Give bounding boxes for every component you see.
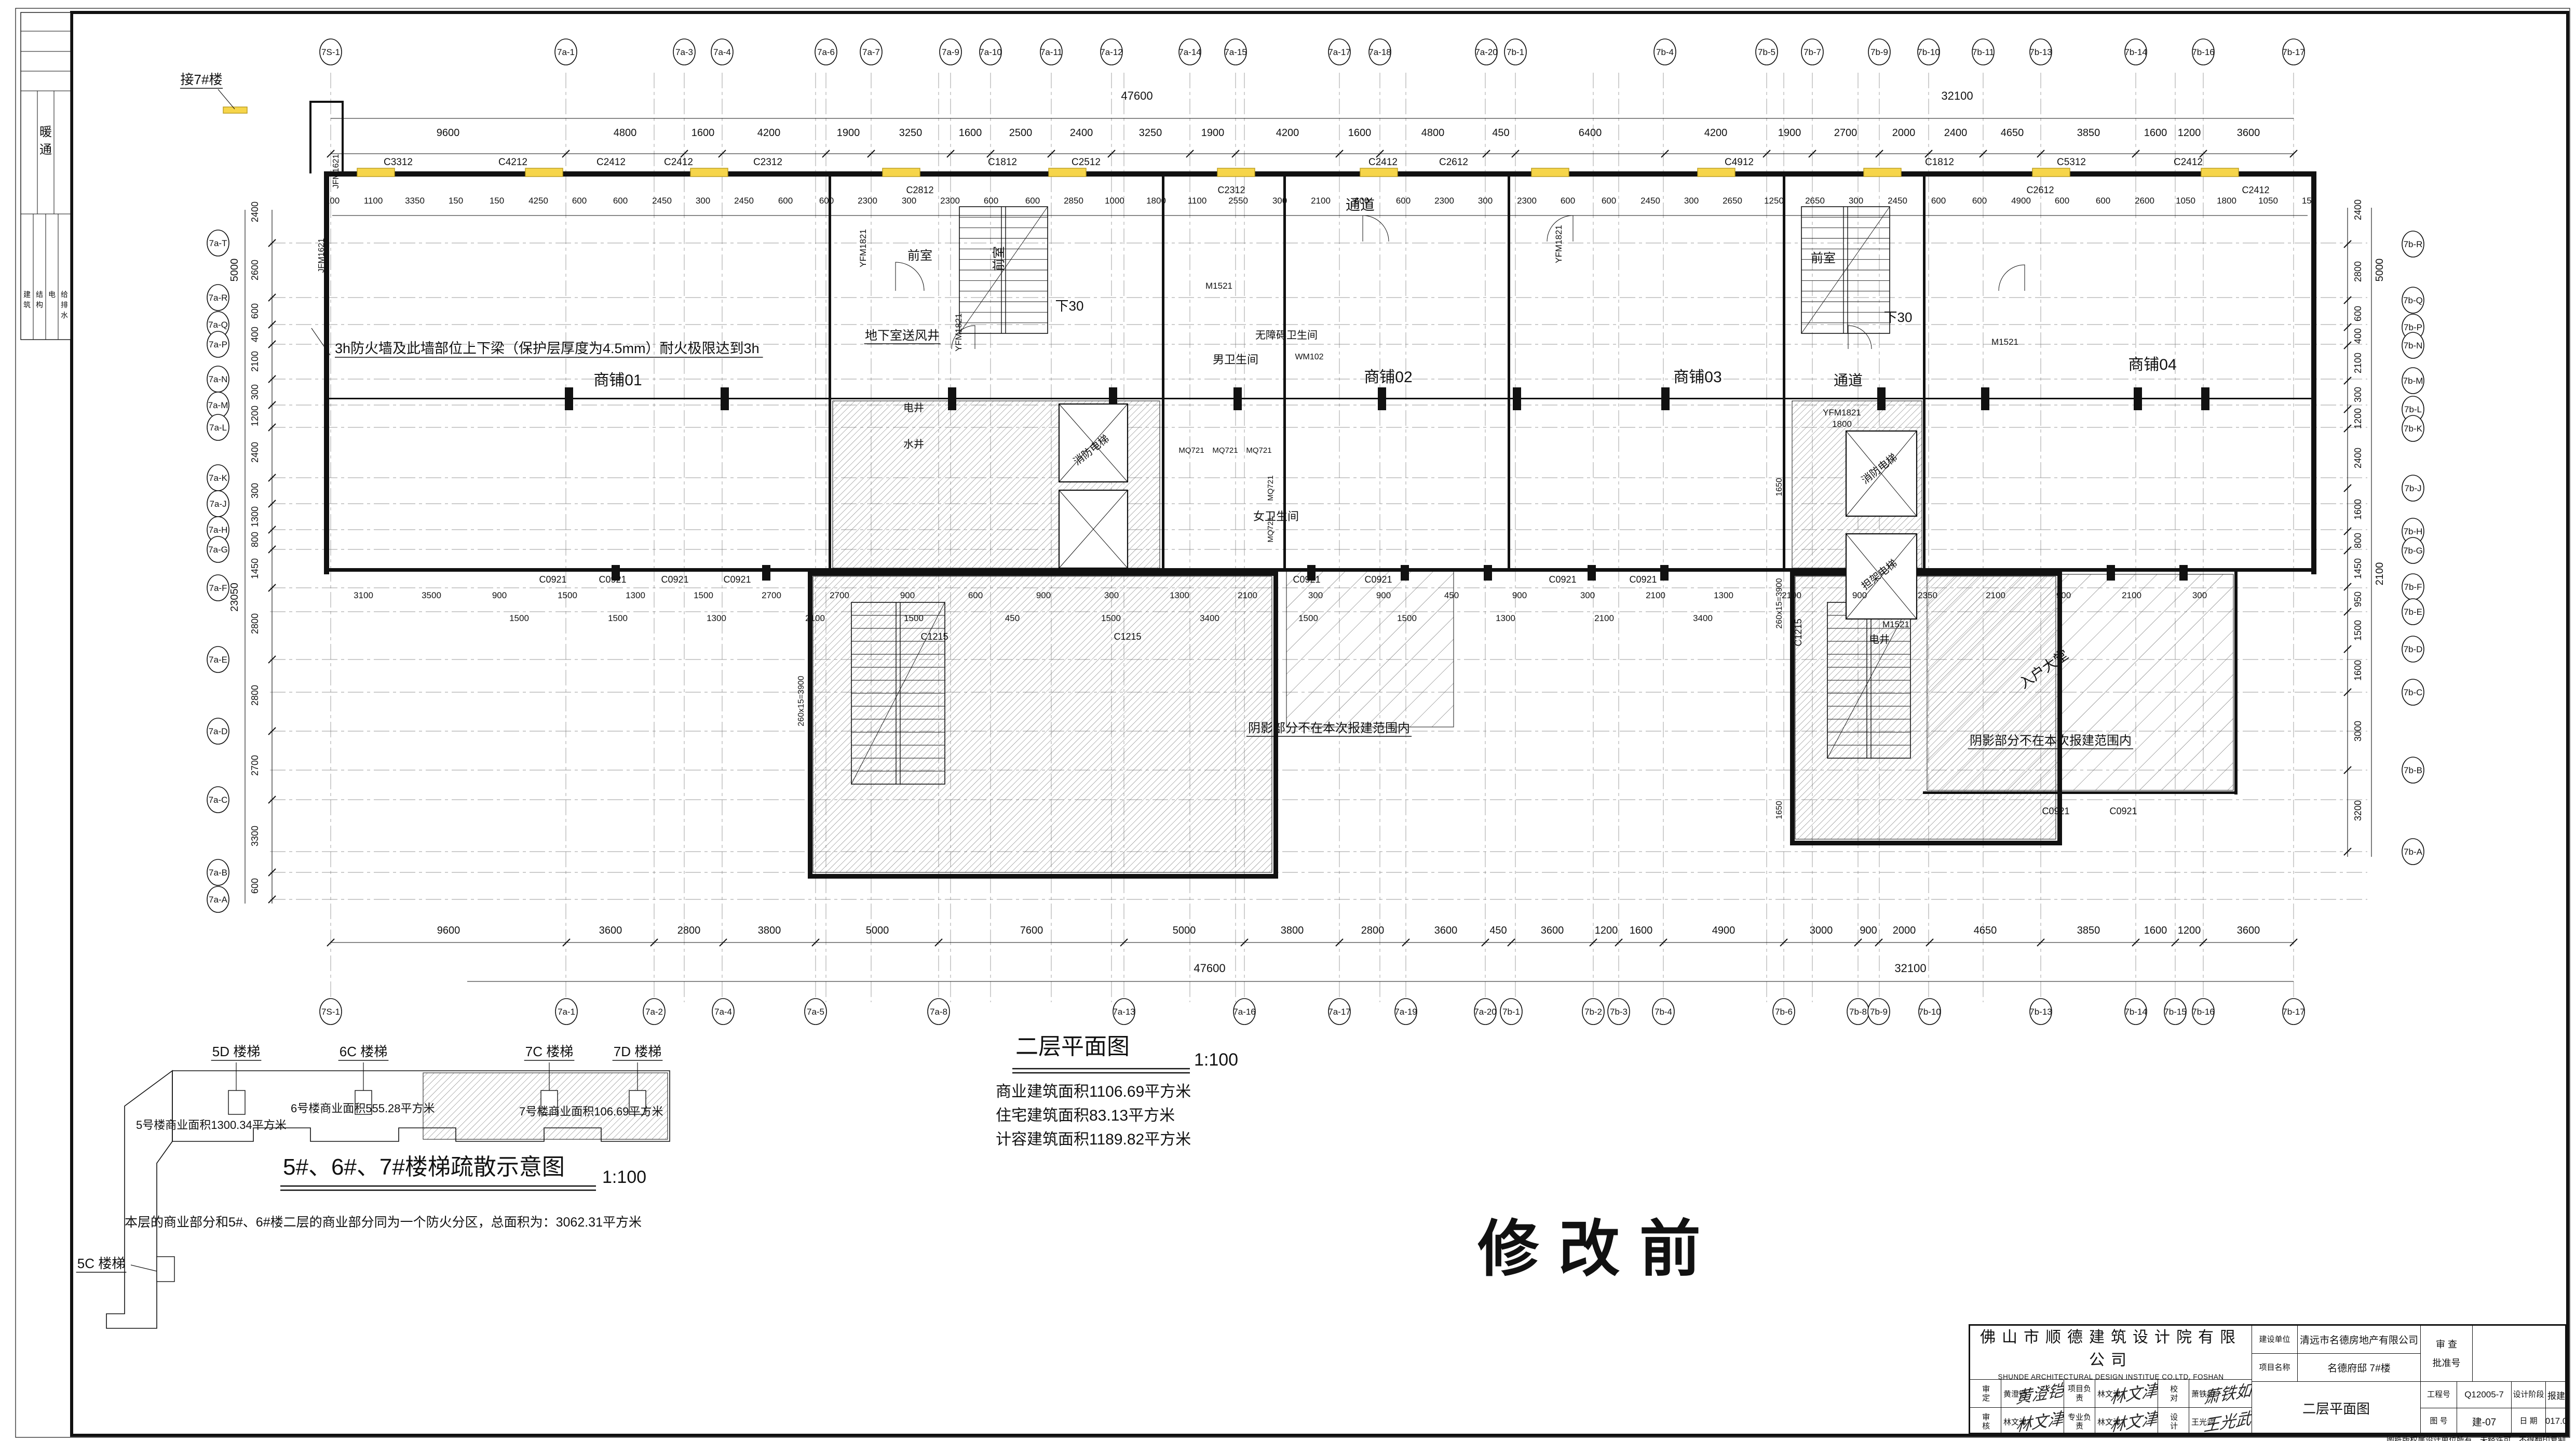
- dimension-text: 2600: [250, 260, 260, 280]
- role-label: 专业负责: [2064, 1408, 2095, 1436]
- window-code: C0921: [723, 574, 751, 585]
- dimension-text: 600: [250, 878, 260, 894]
- door-swing-arc: [1363, 216, 1389, 241]
- grid-bubble-label: 7S-1: [321, 1007, 340, 1017]
- door-swing-arc: [1848, 326, 1872, 349]
- date-value: 2017.06: [2546, 1408, 2567, 1434]
- room-label: JFM1621: [317, 238, 326, 273]
- strip-label-discipline: 结: [36, 290, 43, 299]
- dimension-text: 600: [1972, 196, 1987, 206]
- dimension-text: 1500: [694, 590, 713, 600]
- grid-bubble-label: 7a-6: [817, 47, 835, 57]
- dimension-text: 600: [778, 196, 793, 206]
- grid-bubble-label: 7b-13: [2029, 1007, 2052, 1017]
- dimension-text: 2300: [940, 196, 960, 206]
- role-label: 校对: [2158, 1380, 2189, 1408]
- window-code: C2812: [906, 185, 933, 195]
- dimension-text: 900: [1376, 590, 1391, 600]
- grid-bubble-label: 7a-7: [862, 47, 880, 57]
- dimension-text: 600: [572, 196, 587, 206]
- window-code: C0921: [661, 574, 688, 585]
- dimension-text: 150: [2302, 196, 2316, 206]
- legend-title: 5#、6#、7#楼梯疏散示意图: [283, 1154, 565, 1180]
- role-label: 审定: [1970, 1380, 2001, 1408]
- dimension-text: 1500: [2353, 620, 2363, 641]
- grid-bubble-label: 7b-P: [2404, 322, 2422, 332]
- dimension-text: 1250: [1764, 196, 1784, 206]
- room-label: 前室: [1811, 251, 1836, 265]
- wall: [808, 874, 1278, 879]
- dimension-text: 600: [1396, 196, 1411, 206]
- room-label: JFM1621: [332, 154, 341, 189]
- room-label: MQ721: [1178, 446, 1204, 455]
- dimension-text: 600: [968, 590, 983, 600]
- dimension-text: 1900: [1778, 127, 1801, 139]
- grid-bubble-label: 7b-1: [1502, 1007, 1520, 1017]
- dimension-text: 2400: [250, 201, 260, 222]
- dimension-text: 2100: [805, 613, 825, 623]
- dimension-text: 300: [1478, 196, 1493, 206]
- dimension-text: 5000: [2374, 259, 2385, 282]
- room-label: 无障碍卫生间: [1255, 329, 1318, 341]
- plan-scale: 1:100: [1194, 1050, 1238, 1070]
- structural-column: [762, 565, 770, 581]
- room-label: 下30: [1884, 309, 1913, 325]
- dimension-text: 1600: [692, 127, 715, 139]
- room-label: 1650: [1775, 478, 1784, 496]
- strip-label-discipline: 电: [48, 290, 56, 299]
- dimension-text: 1500: [1397, 613, 1417, 623]
- grid-bubble-label: 7a-14: [1178, 47, 1201, 57]
- grid-bubble-label: 7a-20: [1474, 1007, 1496, 1017]
- dimension-text: 2800: [250, 685, 260, 706]
- signature-scribble: 林文津: [2109, 1408, 2158, 1436]
- structural-column: [2179, 565, 2188, 581]
- room-label: 商铺03: [1673, 369, 1721, 386]
- grid-bubble-label: 7b-7: [1804, 47, 1821, 57]
- strip-label-discipline: 筑: [23, 301, 31, 309]
- dimension-text: 1600: [2353, 660, 2363, 681]
- dimension-text: 2700: [762, 590, 781, 600]
- window-code: C0921: [1293, 574, 1320, 585]
- hatched-excluded-area: [1927, 574, 2233, 790]
- room-label: WM102: [1295, 353, 1323, 361]
- room-label: 女卫生间: [1253, 510, 1299, 523]
- dimension-text: 1300: [250, 506, 260, 527]
- dimension-text: 4200: [757, 127, 781, 139]
- grid-bubble-label: 7b-3: [1610, 1007, 1628, 1017]
- role-label: 项目负责: [2064, 1380, 2095, 1408]
- grid-bubble-label: 7a-E: [209, 655, 227, 665]
- room-label: C1215: [920, 631, 948, 642]
- figure-no-value: 建-07: [2457, 1408, 2512, 1434]
- grid-bubble-label: 7b-16: [2192, 1007, 2214, 1017]
- grid-bubble-label: 7b-13: [2029, 47, 2052, 57]
- grid-bubble-label: 7b-C: [2404, 688, 2423, 697]
- grid-bubble-label: 7b-10: [1917, 47, 1940, 57]
- grid-bubble-label: 7a-1: [557, 47, 575, 57]
- room-label: 3h防火墙及此墙部位上下梁（保护层厚度为4.5mm）耐火极限达到3h: [335, 341, 760, 356]
- dimension-text: 450: [1489, 925, 1507, 936]
- dimension-text: 600: [1561, 196, 1575, 206]
- dimension-text: 300: [2353, 387, 2363, 402]
- role-name-cell: 林文津林文津: [2001, 1408, 2064, 1436]
- dimension-text: 3850: [2077, 127, 2100, 139]
- dimension-text: 300: [2192, 590, 2207, 600]
- role-name-cell: 林文津林文津: [2095, 1408, 2158, 1436]
- wall: [327, 171, 2316, 177]
- legend-stair-box: [228, 1090, 245, 1114]
- window-code: C2412: [2174, 157, 2203, 168]
- dimension-text: 1500: [558, 590, 577, 600]
- dimension-text: 600: [2055, 196, 2069, 206]
- dimension-text: 600: [1602, 196, 1616, 206]
- role-label: 设计: [2158, 1408, 2189, 1436]
- wall: [1162, 177, 1164, 569]
- dimension-text: 1300: [626, 590, 645, 600]
- dimension-text: 2100: [250, 351, 260, 372]
- dimension-text: 400: [2353, 328, 2363, 344]
- dimension-text: 2600: [2135, 196, 2154, 206]
- dimension-text: 950: [2353, 591, 2363, 607]
- grid-bubble-label: 7b-A: [2404, 847, 2423, 857]
- structural-column: [1378, 387, 1386, 410]
- grid-bubble-label: 7a-9: [942, 47, 959, 57]
- grid-bubble-label: 7b-1: [1507, 47, 1524, 57]
- window-code: C0921: [1549, 574, 1576, 585]
- dimension-text: 2450: [734, 196, 754, 206]
- dimension-text: 300: [1849, 196, 1863, 206]
- dimension-text: 100: [325, 196, 340, 206]
- legend-label: 7号楼商业面积106.69平方米: [519, 1105, 663, 1118]
- room-label: MQ721: [1266, 517, 1275, 542]
- strip-label-discipline: 水: [61, 311, 68, 319]
- dimension-text: 3250: [1139, 127, 1162, 139]
- dimension-text: 1000: [1105, 196, 1124, 206]
- wall: [1923, 791, 2238, 794]
- structural-column: [1981, 387, 1989, 410]
- dimension-text: 23050: [229, 583, 240, 612]
- grid-bubble-label: 7a-20: [1475, 47, 1497, 57]
- dimension-text: 4900: [1712, 925, 1736, 936]
- window-code: C0921: [1629, 574, 1657, 585]
- dimension-text: 300: [696, 196, 710, 206]
- dimension-text: 150: [490, 196, 504, 206]
- dimension-text: 1200: [250, 406, 260, 426]
- dimension-text: 3600: [2237, 127, 2260, 139]
- highlighted-window: [2032, 168, 2070, 177]
- drawing-sheet: 暖通建筑结构电给排水7S-17a-17a-37a-47a-67a-77a-97a…: [0, 0, 2576, 1441]
- legend-label: 6C 楼梯: [340, 1044, 387, 1059]
- signature-scribble: 黄澄铠: [2015, 1380, 2064, 1408]
- dimension-text: 3400: [1200, 613, 1219, 623]
- grid-bubble-label: 7a-10: [979, 47, 1001, 57]
- dimension-text: 300: [1308, 590, 1323, 600]
- dimension-text: 1300: [1714, 590, 1733, 600]
- grid-bubble-label: 7b-M: [2403, 376, 2423, 386]
- dimension-text: 1800: [2217, 196, 2236, 206]
- grid-bubble-label: 7a-2: [645, 1007, 663, 1017]
- legend-outline: [106, 1071, 172, 1328]
- dimension-text: 2100: [2374, 562, 2385, 586]
- grid-bubble-label: 7a-11: [1040, 47, 1062, 57]
- room-label: YFM1821: [858, 229, 868, 267]
- grid-bubble-label: 7b-14: [2124, 1007, 2147, 1017]
- dimension-text: 900: [492, 590, 507, 600]
- window-code: C2412: [596, 157, 626, 168]
- grid-bubble-label: 7a-8: [930, 1007, 947, 1017]
- area-statistic: 商业建筑面积1106.69平方米: [996, 1083, 1191, 1100]
- grid-bubble-label: 7b-J: [2404, 483, 2421, 493]
- grid-bubble-label: 7a-15: [1224, 47, 1246, 57]
- highlighted-window: [1049, 168, 1086, 177]
- structural-column: [948, 387, 956, 410]
- wall: [327, 568, 2316, 572]
- room-label: 商铺02: [1364, 369, 1412, 386]
- dimension-text: 1050: [2176, 196, 2195, 206]
- window-code: C5312: [2057, 157, 2086, 168]
- legend-label: 5号楼商业面积1300.34平方米: [136, 1119, 287, 1132]
- dimension-text: 2100: [1311, 196, 1331, 206]
- grid-bubble-label: 7b-10: [1918, 1007, 1941, 1017]
- company-name-en: SHUNDE ARCHITECTURAL DESIGN INSTITUE CO.…: [1998, 1373, 2224, 1380]
- dimension-text: 1600: [2144, 127, 2167, 139]
- dimension-text: 300: [1104, 590, 1119, 600]
- dimension-text: 4250: [528, 196, 548, 206]
- dimension-text: 3300: [250, 826, 260, 846]
- strip-label-discipline: 构: [36, 301, 43, 309]
- highlighted-window: [1360, 168, 1398, 177]
- signature-scribble: 王光武: [2203, 1408, 2252, 1436]
- grid-bubble-label: 7b-H: [2404, 527, 2423, 536]
- dimension-text: 2100: [2122, 590, 2141, 600]
- dimension-text: 9600: [437, 925, 460, 936]
- dimension-text: 2300: [1517, 196, 1537, 206]
- grid-bubble-label: 7a-J: [209, 499, 226, 509]
- dimension-text: 2100: [1238, 590, 1257, 600]
- dimension-text: 5000: [229, 259, 240, 282]
- grid-bubble-label: 7a-3: [675, 47, 693, 57]
- dimension-text: 1600: [959, 127, 982, 139]
- dimension-text: 1500: [608, 613, 628, 623]
- strip-label-discipline: 排: [61, 301, 68, 309]
- room-label: M1521: [1991, 337, 2018, 347]
- dimension-text: 1500: [1298, 613, 1318, 623]
- room-label: 接7#楼: [181, 72, 223, 87]
- grid-bubble-label: 7b-G: [2403, 546, 2423, 556]
- dimension-text: 47600: [1121, 89, 1153, 102]
- dimension-text: 2000: [1892, 127, 1916, 139]
- highlighted-window: [223, 107, 247, 113]
- dimension-text: 2450: [1640, 196, 1660, 206]
- wall: [2311, 171, 2316, 574]
- dimension-text: 2100: [1594, 613, 1614, 623]
- dimension-text: 2800: [250, 613, 260, 634]
- window-code: C2612: [1439, 157, 1468, 168]
- structural-column: [1877, 387, 1886, 410]
- dimension-text: 47600: [1194, 962, 1225, 975]
- grid-bubble-label: 7b-16: [2192, 47, 2214, 57]
- dimension-text: 5000: [866, 925, 889, 936]
- dimension-text: 600: [1931, 196, 1946, 206]
- grid-bubble-label: 7b-D: [2404, 644, 2423, 654]
- signature-scribble: 林文津: [2015, 1408, 2064, 1436]
- grid-bubble-label: 7S-1: [321, 47, 340, 57]
- dimension-text: 1500: [1101, 613, 1121, 623]
- dimension-text: 450: [1005, 613, 1020, 623]
- wall: [808, 571, 1278, 576]
- room-label: MQ721: [1266, 475, 1275, 501]
- room-label: 通道: [1346, 197, 1375, 213]
- grid-bubble-label: 7a-13: [1113, 1007, 1135, 1017]
- grid-bubble-label: 7b-B: [2404, 765, 2422, 775]
- wall: [1790, 571, 1795, 845]
- grid-bubble-label: 7b-F: [2404, 582, 2422, 592]
- dimension-text: 2450: [652, 196, 672, 206]
- engineering-no-label: 工程号: [2421, 1382, 2457, 1408]
- structural-column: [1660, 565, 1669, 581]
- dimension-text: 5000: [1173, 925, 1196, 936]
- dimension-text: 2100: [1986, 590, 2005, 600]
- room-label: 1800: [1832, 419, 1852, 429]
- dimension-text: 450: [1444, 590, 1459, 600]
- window-code: C0921: [2109, 806, 2137, 816]
- signature-scribble: 林文津: [2109, 1380, 2158, 1408]
- legend-stair-box: [157, 1257, 174, 1282]
- grid-bubble-label: 7a-N: [209, 374, 228, 384]
- grid-bubble-label: 7a-B: [209, 868, 227, 878]
- dimension-text: 2800: [2353, 261, 2363, 282]
- dimension-text: 2500: [1009, 127, 1033, 139]
- dimension-text: 9600: [437, 127, 460, 139]
- role-name-cell: 黄澄铠黄澄铠: [2001, 1380, 2064, 1408]
- dimension-text: 1900: [837, 127, 860, 139]
- legend-label: 7C 楼梯: [525, 1044, 573, 1059]
- dimension-text: 7600: [1020, 925, 1043, 936]
- dimension-text: 2850: [1064, 196, 1083, 206]
- grid-bubble-label: 7a-19: [1394, 1007, 1417, 1017]
- wall: [327, 398, 2316, 399]
- dimension-text: 4900: [2011, 196, 2031, 206]
- grid-bubble-label: 7a-T: [209, 238, 227, 248]
- grid-bubble-label: 7a-4: [713, 47, 731, 57]
- room-label: 地下室送风井: [865, 329, 940, 343]
- dimension-text: 2100: [1646, 590, 1665, 600]
- revision-stamp: 修改前: [1477, 1215, 1720, 1284]
- dimension-text: 900: [1036, 590, 1051, 600]
- structural-column: [1588, 565, 1596, 581]
- dimension-text: 2000: [1893, 925, 1916, 936]
- client-value: 清远市名德房地产有限公司: [2298, 1326, 2421, 1354]
- dimension-text: 400: [250, 327, 260, 342]
- room-label: 电井: [1869, 634, 1890, 645]
- review-label: 审 查: [2436, 1335, 2457, 1354]
- wall: [324, 171, 329, 574]
- dimension-text: 2400: [250, 442, 260, 463]
- grid-bubble-label: 7b-6: [1775, 1007, 1793, 1017]
- copyright-note: 图纸版权属设计单位所有，未经许可，不得翻印复制: [2098, 1434, 2566, 1441]
- dimension-text: 2800: [1361, 925, 1385, 936]
- grid-bubble-label: 7b-R: [2404, 239, 2423, 249]
- window-code: C0921: [599, 574, 626, 585]
- figure-no-label: 图 号: [2421, 1408, 2457, 1434]
- grid-bubble-label: 7b-11: [1972, 47, 1994, 57]
- wall: [2234, 571, 2238, 794]
- grid-bubble-label: 7a-R: [209, 293, 228, 303]
- strip-label-discipline: 给: [61, 290, 68, 299]
- room-label: 电井: [903, 402, 924, 414]
- window-code: C2412: [2242, 185, 2269, 195]
- dimension-text: 2400: [1944, 127, 1968, 139]
- grid-bubble-label: 7a-17: [1328, 1007, 1350, 1017]
- grid-bubble-label: 7b-4: [1655, 1007, 1672, 1017]
- signature-scribble: 萧铁如: [2203, 1380, 2252, 1408]
- dimension-text: 2300: [858, 196, 877, 206]
- room-label: 前室: [992, 246, 1006, 271]
- dimension-text: 900: [1512, 590, 1527, 600]
- dimension-text: 300: [250, 384, 260, 400]
- dimension-text: 900: [1852, 590, 1867, 600]
- approval-empty-cell: [2473, 1326, 2567, 1382]
- dimension-text: 600: [2353, 306, 2363, 321]
- grid-bubble-label: 7b-14: [2124, 47, 2147, 57]
- dimension-text: 800: [250, 532, 260, 547]
- dimension-text: 1450: [250, 558, 260, 579]
- dimension-text: 4200: [1704, 127, 1728, 139]
- dimension-text: 2400: [2353, 448, 2363, 468]
- window-code: C1812: [1925, 157, 1954, 168]
- structural-column: [1513, 387, 1521, 410]
- structural-column: [2107, 565, 2115, 581]
- window-code: C2412: [1368, 157, 1398, 168]
- grid-bubble-label: 7a-A: [209, 895, 228, 905]
- dimension-text: 4650: [2001, 127, 2024, 139]
- grid-bubble-label: 7a-18: [1368, 47, 1391, 57]
- room-label: C1215: [1114, 631, 1141, 642]
- dimension-text: 150: [449, 196, 463, 206]
- dimension-text: 300: [1684, 196, 1699, 206]
- project-label: 项目名称: [2252, 1354, 2298, 1382]
- strip-label-hvac: 暖: [39, 125, 52, 139]
- dimension-text: 300: [902, 196, 916, 206]
- dimension-text: 3800: [1281, 925, 1304, 936]
- dimension-text: 300: [250, 483, 260, 499]
- dimension-text: 1600: [1630, 925, 1653, 936]
- wall: [342, 101, 344, 173]
- dimension-text: 1300: [707, 613, 726, 623]
- room-label: 商铺04: [2128, 356, 2176, 373]
- window-code: C4212: [498, 157, 527, 168]
- highlighted-window: [1531, 168, 1569, 177]
- dimension-text: 450: [1492, 127, 1509, 139]
- dimension-text: 1800: [1146, 196, 1166, 206]
- dimension-text: 1200: [2353, 408, 2363, 429]
- dimension-text: 1200: [2178, 127, 2201, 139]
- window-code: C2612: [2026, 185, 2054, 195]
- legend-scale: 1:100: [602, 1167, 646, 1187]
- dimension-text: 4800: [614, 127, 637, 139]
- highlighted-window: [2201, 168, 2239, 177]
- drawing-name-cell: 二层平面图: [2252, 1382, 2421, 1434]
- structural-column: [565, 387, 573, 410]
- dimension-text: 3250: [899, 127, 923, 139]
- dimension-text: 3400: [1693, 613, 1713, 623]
- dimension-text: 3100: [354, 590, 373, 600]
- window-code: C4912: [1725, 157, 1754, 168]
- room-label: 260x15=3900: [797, 676, 806, 726]
- dimension-text: 3200: [2353, 800, 2363, 821]
- dimension-text: 2650: [1805, 196, 1825, 206]
